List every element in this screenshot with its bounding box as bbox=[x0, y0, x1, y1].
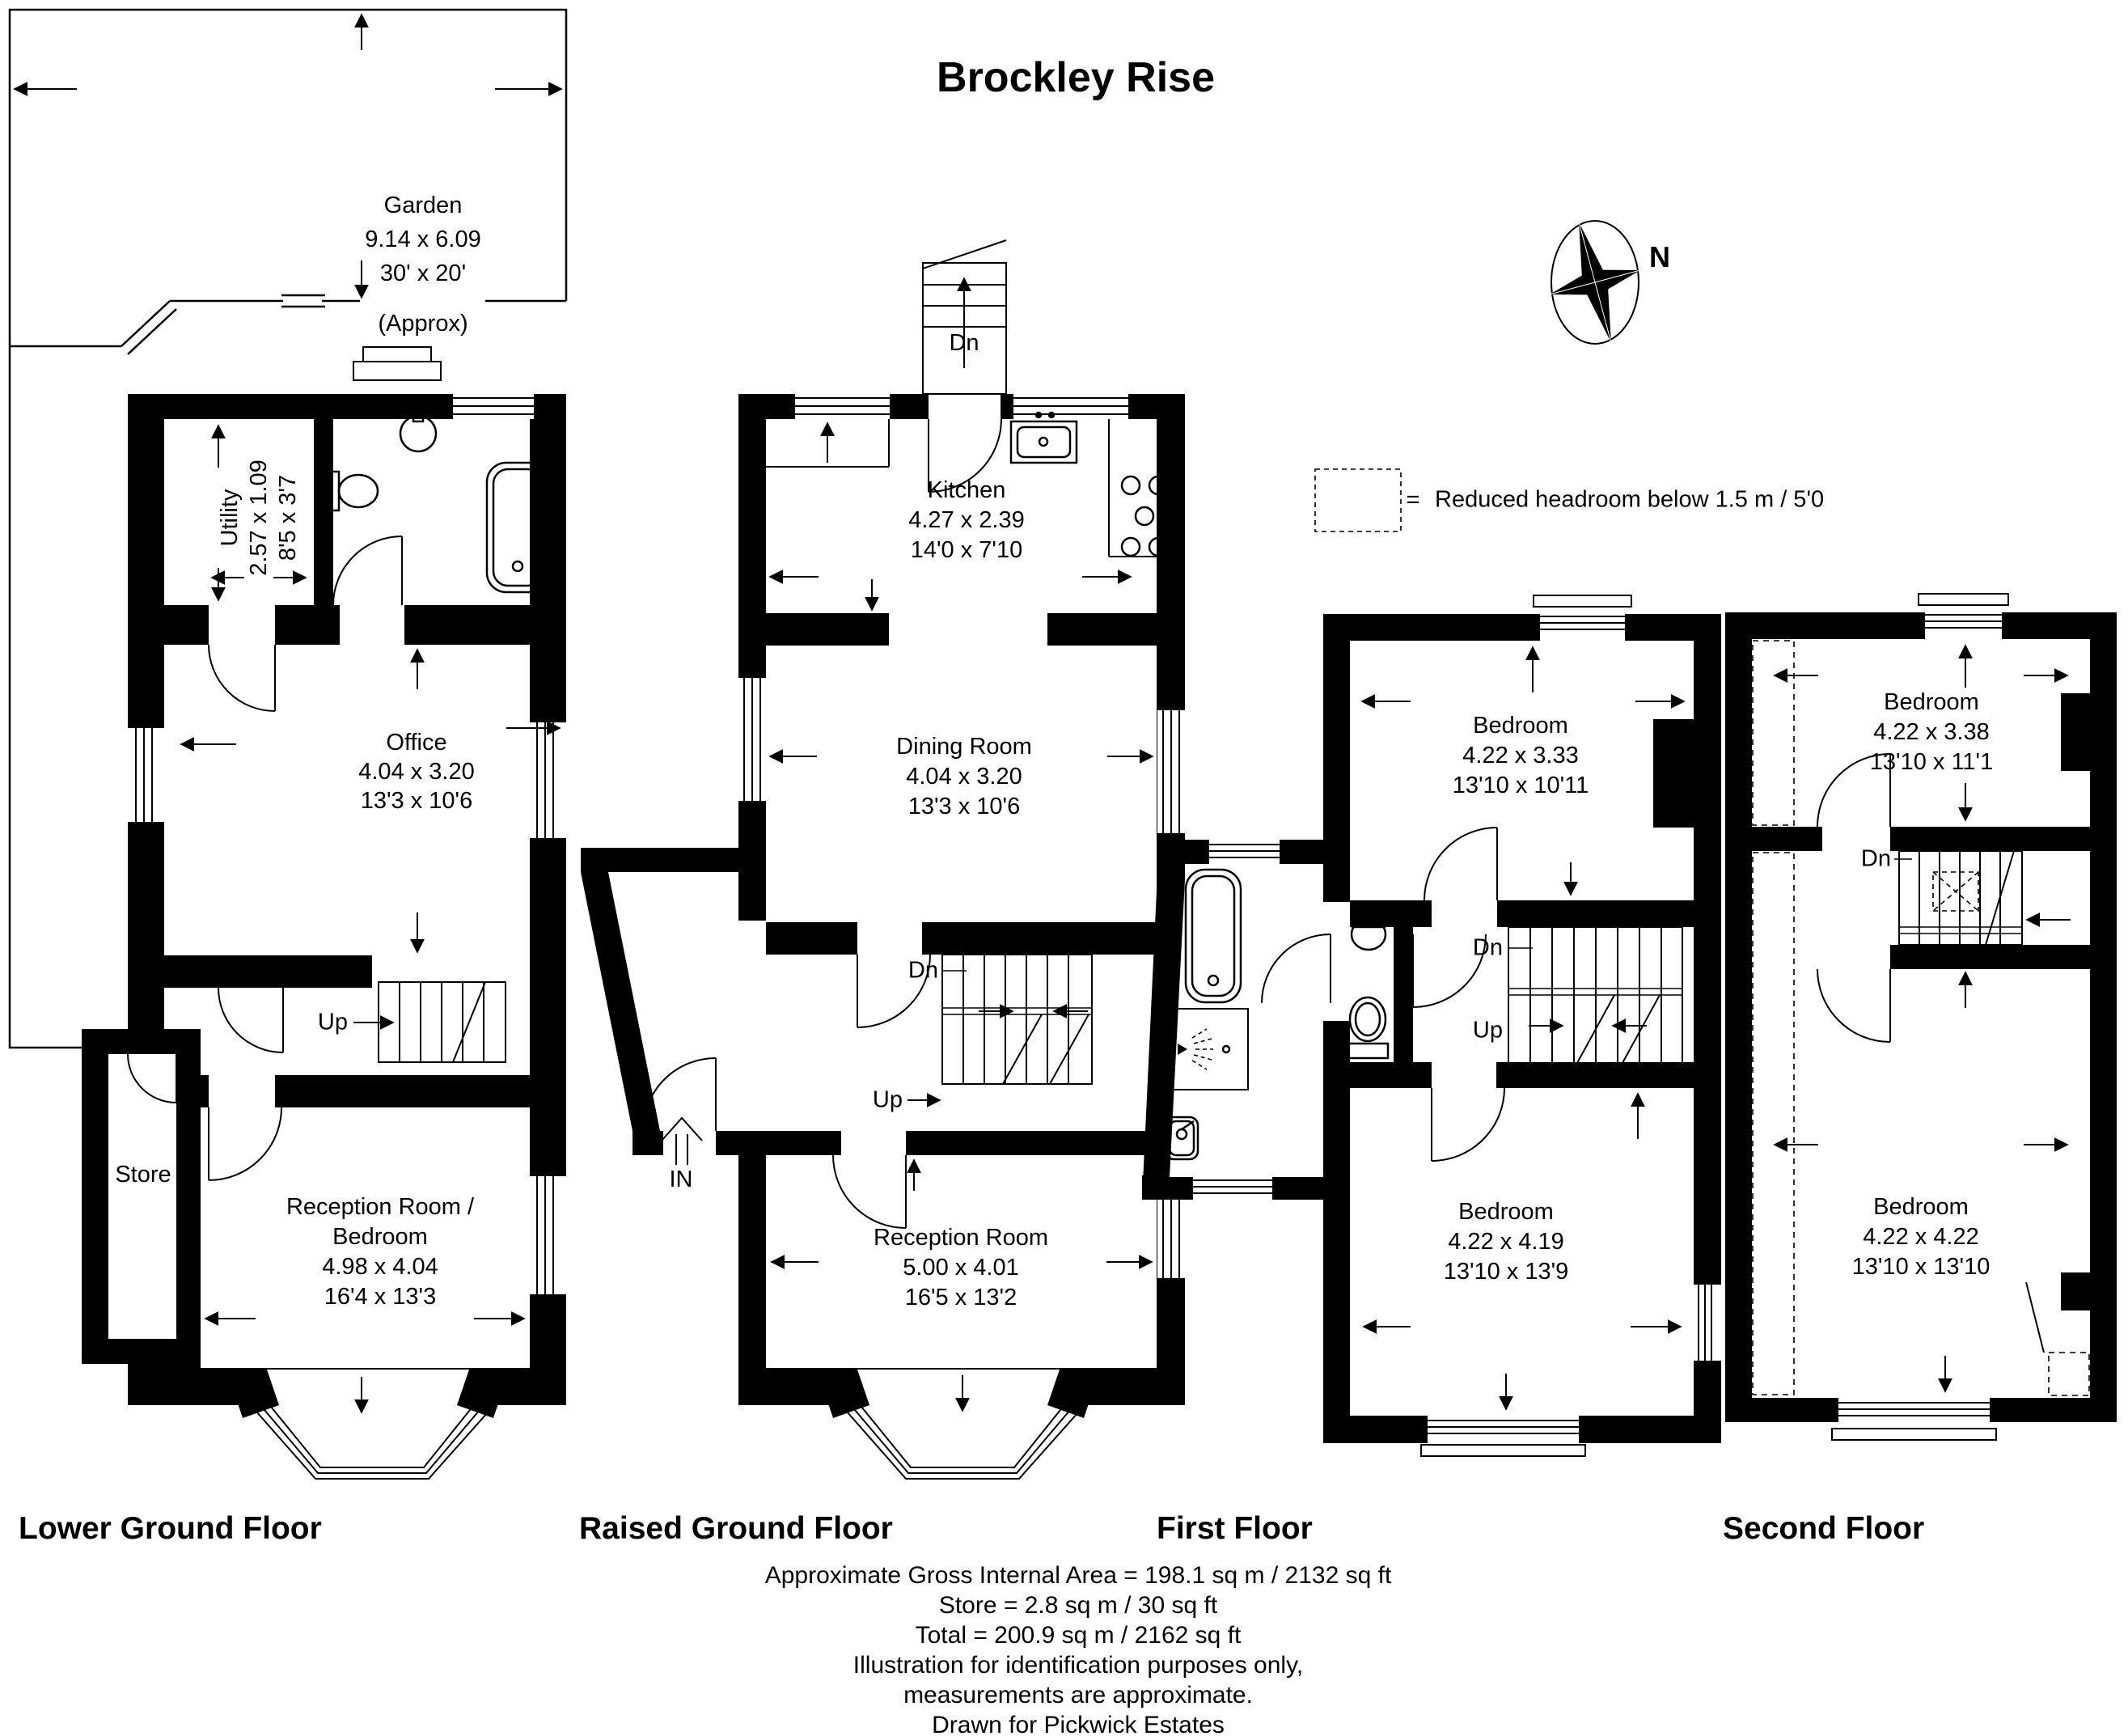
utility-metric: 2.57 x 1.09 bbox=[244, 459, 273, 576]
ff-bedroom2-imperial: 13'10 x 13'9 bbox=[1444, 1257, 1569, 1286]
footer-credit: Drawn for Pickwick Estates bbox=[932, 1712, 1225, 1736]
rgf-reception-name: Reception Room bbox=[874, 1223, 1048, 1252]
office-name: Office bbox=[386, 728, 446, 757]
office-metric: 4.04 x 3.20 bbox=[358, 757, 475, 786]
floorplan-linework bbox=[0, 0, 2128, 1736]
sf-bedroom2-imperial: 13'10 x 13'10 bbox=[1852, 1252, 1991, 1281]
garden-note: (Approx) bbox=[378, 309, 467, 338]
legend-equals: = bbox=[1407, 485, 1420, 514]
lgf-reception-line1: Reception Room / bbox=[286, 1192, 474, 1222]
garden-dimension-arrows bbox=[15, 15, 561, 298]
rgf-stairs-up-label: Up bbox=[873, 1087, 903, 1114]
ff-stairs-up-label: Up bbox=[1473, 1018, 1503, 1044]
raised-ground-floor-walls bbox=[581, 387, 1185, 1418]
office-imperial: 13'3 x 10'6 bbox=[361, 786, 472, 815]
ff-bedroom1-name: Bedroom bbox=[1473, 711, 1568, 740]
floor-label-second: Second Floor bbox=[1723, 1511, 1924, 1547]
sf-bedroom1-name: Bedroom bbox=[1884, 688, 1979, 717]
rgf-stairs-dn-label: Dn bbox=[908, 958, 938, 984]
sf-bedroom2-name: Bedroom bbox=[1873, 1192, 1969, 1222]
rgf-external-stairs-dn-label: Dn bbox=[949, 328, 979, 358]
ff-bedroom1-imperial: 13'10 x 10'11 bbox=[1453, 771, 1589, 800]
kitchen-imperial: 14'0 x 7'10 bbox=[911, 536, 1022, 565]
utility-name: Utility bbox=[215, 459, 244, 576]
garden-imperial: 30' x 20' bbox=[380, 259, 466, 288]
ff-stairs-dn-label: Dn bbox=[1473, 935, 1503, 962]
kitchen-name: Kitchen bbox=[928, 476, 1006, 505]
kitchen-metric: 4.27 x 2.39 bbox=[908, 506, 1025, 535]
ff-bedroom2-metric: 4.22 x 4.19 bbox=[1448, 1227, 1564, 1256]
store-name: Store bbox=[115, 1160, 171, 1189]
dining-name: Dining Room bbox=[896, 732, 1032, 761]
floor-label-lower-ground: Lower Ground Floor bbox=[19, 1511, 322, 1547]
lgf-reception-metric: 4.98 x 4.04 bbox=[322, 1252, 438, 1281]
sf-bedroom1-imperial: 13'10 x 11'1 bbox=[1870, 747, 1993, 777]
rgf-reception-metric: 5.00 x 4.01 bbox=[903, 1253, 1019, 1282]
garden-label: Garden bbox=[384, 191, 463, 220]
ff-bedroom2-name: Bedroom bbox=[1458, 1197, 1554, 1226]
garden-metric: 9.14 x 6.09 bbox=[365, 225, 481, 254]
lgf-reception-line2: Bedroom bbox=[332, 1222, 428, 1251]
lgf-stairs-up-label: Up bbox=[318, 1010, 348, 1036]
page-title: Brockley Rise bbox=[937, 53, 1215, 102]
legend-reduced-headroom-swatch bbox=[1315, 469, 1401, 531]
compass-north-label: N bbox=[1649, 240, 1670, 274]
sf-stairs-dn-label: Dn bbox=[1861, 846, 1891, 873]
footer-store-area: Store = 2.8 sq m / 30 sq ft bbox=[939, 1592, 1217, 1620]
dining-imperial: 13'3 x 10'6 bbox=[908, 792, 1020, 821]
room-label-utility: Utility 2.57 x 1.09 8'5 x 3'7 bbox=[215, 459, 302, 576]
footer-disclaimer-2: measurements are approximate. bbox=[903, 1682, 1253, 1709]
ff-bedroom1-metric: 4.22 x 3.33 bbox=[1462, 741, 1579, 770]
footer-gross-area: Approximate Gross Internal Area = 198.1 … bbox=[765, 1562, 1392, 1590]
dining-metric: 4.04 x 3.20 bbox=[906, 762, 1022, 791]
utility-imperial: 8'5 x 3'7 bbox=[273, 459, 302, 576]
floor-label-raised-ground: Raised Ground Floor bbox=[579, 1511, 893, 1547]
lgf-reception-imperial: 16'4 x 13'3 bbox=[324, 1282, 436, 1311]
footer-total-area: Total = 200.9 sq m / 2162 sq ft bbox=[916, 1622, 1242, 1649]
floorplan-canvas: Brockley Rise N = Reduced headroom below… bbox=[0, 0, 2128, 1736]
entrance-in-label: IN bbox=[670, 1165, 693, 1194]
floor-label-first: First Floor bbox=[1157, 1511, 1313, 1547]
legend-text: Reduced headroom below 1.5 m / 5'0 bbox=[1435, 487, 1824, 514]
rgf-reception-imperial: 16'5 x 13'2 bbox=[905, 1283, 1017, 1312]
compass-icon bbox=[1534, 210, 1656, 355]
sf-bedroom1-metric: 4.22 x 3.38 bbox=[1873, 718, 1990, 747]
sf-bedroom2-metric: 4.22 x 4.22 bbox=[1863, 1222, 1979, 1251]
footer-disclaimer-1: Illustration for identification purposes… bbox=[853, 1652, 1303, 1679]
